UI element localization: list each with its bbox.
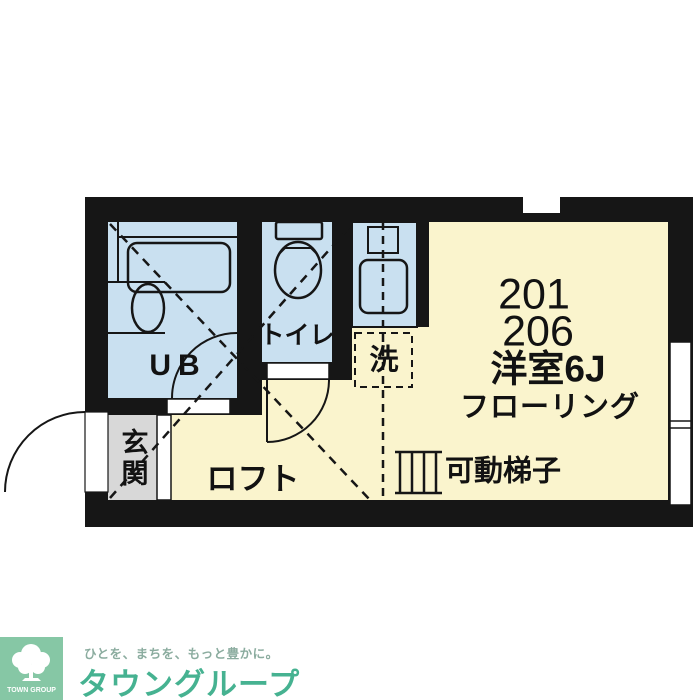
entrance-label: 玄関 [119, 428, 146, 490]
wall-laundry-right [417, 197, 429, 327]
room-type-label: 洋室6J [490, 351, 605, 388]
unit-number-206: 206 [502, 311, 574, 354]
toilet-door-threshold [267, 363, 329, 379]
logo-caption: TOWN GROUP [7, 687, 56, 694]
tree-logo-icon: TOWN GROUP [0, 637, 63, 700]
town-group-logo: TOWN GROUP [0, 637, 63, 700]
flooring-label: フローリング [460, 394, 640, 423]
entrance-door-opening [85, 412, 108, 492]
top-wall-vent [523, 197, 560, 213]
entrance-door-arc [5, 412, 85, 492]
ladder-label: 可動梯子 [445, 458, 561, 487]
toilet-label: トイレ [259, 324, 334, 349]
entrance-step [157, 415, 171, 500]
bath-label: UB [149, 351, 206, 381]
wall-left-upper [85, 197, 108, 412]
bath-door-threshold [167, 399, 230, 414]
window-right [670, 342, 691, 505]
laundry-label: 洗 [369, 347, 398, 376]
floor-plan-page: UB トイレ 洗 玄関 ロフト 可動梯子 201 206 洋室6J フローリング… [0, 0, 700, 700]
loft-label: ロフト [207, 464, 300, 495]
wall-left-lower [85, 492, 108, 527]
wall-toilet-right [332, 197, 352, 380]
tree-shape [12, 644, 50, 681]
brand-company: タウングループ [78, 659, 300, 700]
wall-bottom [85, 500, 693, 527]
wall-top [85, 197, 693, 222]
